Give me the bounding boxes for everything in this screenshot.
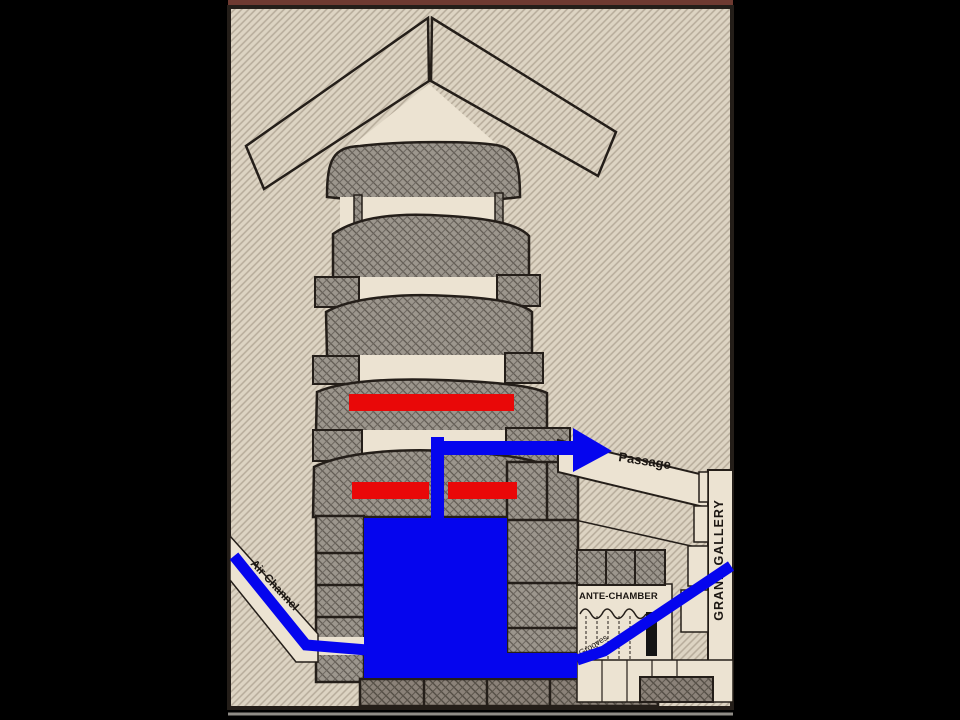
chamber-wall-left xyxy=(316,516,364,682)
pyramid-cross-section-diagram: GRAND GALLERY ANTE-CHAMBER Grooves Air C… xyxy=(0,0,960,720)
screenshot-stage: GRAND GALLERY ANTE-CHAMBER Grooves Air C… xyxy=(0,0,960,720)
gallery-corbel-step xyxy=(699,472,708,502)
slab-3 xyxy=(326,295,532,362)
red-bar-upper xyxy=(349,394,514,411)
red-bar-lower-right xyxy=(448,482,517,499)
red-bar-lower-left xyxy=(352,482,429,499)
passage-arrow-shaft xyxy=(431,441,575,455)
grand-gallery-label: GRAND GALLERY xyxy=(712,499,726,621)
void-3-block-left xyxy=(313,356,359,384)
antechamber-roof-blocks xyxy=(577,550,665,585)
gallery-corbel-step xyxy=(694,506,708,542)
chamber-wall-right xyxy=(507,462,578,653)
slab-1 xyxy=(327,142,520,203)
slab-2 xyxy=(333,215,529,283)
void-3-block-right xyxy=(505,353,543,383)
antechamber-label: ANTE-CHAMBER xyxy=(579,591,658,602)
floor-dark-block xyxy=(640,677,713,702)
